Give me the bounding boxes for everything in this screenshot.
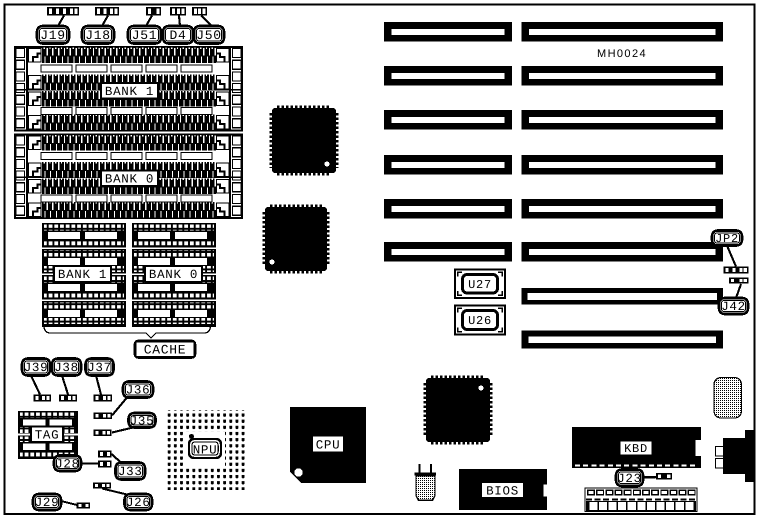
- svg-text:JP2: JP2: [715, 232, 739, 246]
- svg-text:J18: J18: [85, 28, 111, 43]
- svg-text:J36: J36: [126, 384, 151, 398]
- svg-text:J29: J29: [35, 496, 60, 510]
- svg-text:J38: J38: [54, 361, 79, 375]
- svg-text:J42: J42: [721, 300, 746, 314]
- svg-text:KBD: KBD: [624, 442, 648, 456]
- svg-text:J35: J35: [130, 414, 155, 428]
- svg-text:J28: J28: [55, 457, 80, 471]
- svg-text:J39: J39: [24, 361, 49, 375]
- svg-text:BIOS: BIOS: [486, 485, 519, 499]
- svg-text:MH0024: MH0024: [597, 48, 647, 60]
- svg-text:J51: J51: [132, 28, 158, 43]
- svg-text:D4: D4: [169, 28, 186, 43]
- svg-text:J23: J23: [617, 472, 642, 486]
- svg-text:BANK 0: BANK 0: [149, 268, 198, 282]
- svg-text:U27: U27: [468, 278, 492, 292]
- svg-text:J19: J19: [40, 28, 66, 43]
- svg-text:U26: U26: [468, 314, 492, 328]
- svg-text:NPU: NPU: [193, 444, 218, 458]
- svg-text:J26: J26: [126, 496, 151, 510]
- svg-text:TAG: TAG: [35, 428, 60, 442]
- svg-text:J50: J50: [196, 28, 222, 43]
- svg-text:BANK 1: BANK 1: [58, 268, 107, 282]
- svg-text:CPU: CPU: [316, 439, 341, 453]
- svg-text:BANK 0: BANK 0: [105, 173, 154, 187]
- svg-text:J33: J33: [118, 465, 143, 479]
- svg-text:CACHE: CACHE: [144, 342, 187, 357]
- svg-text:BANK 1: BANK 1: [105, 85, 154, 99]
- svg-text:J37: J37: [87, 361, 112, 375]
